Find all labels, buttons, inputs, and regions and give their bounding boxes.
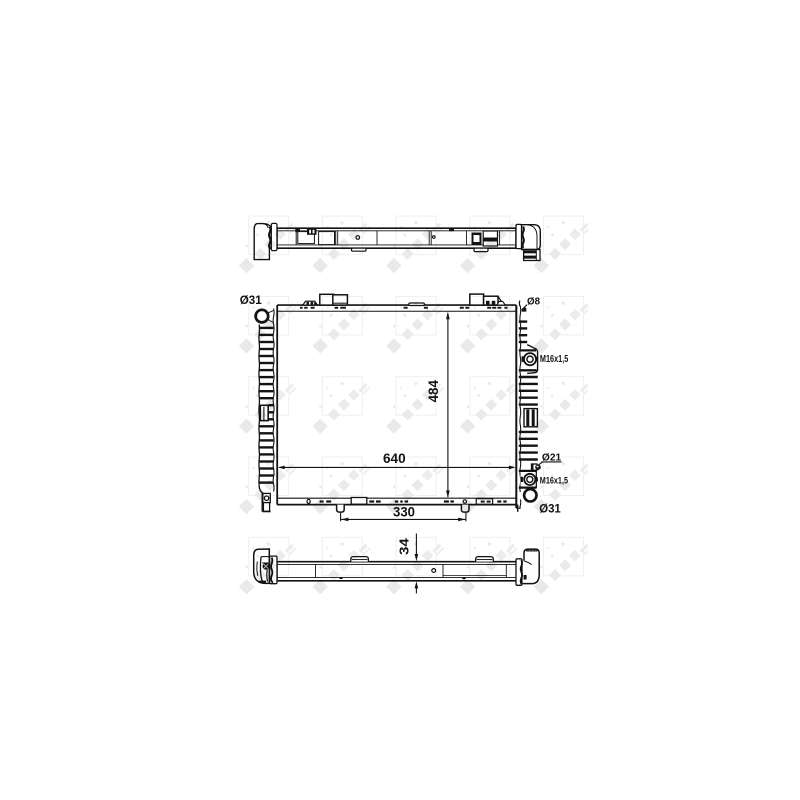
svg-text:Ø31: Ø31 <box>240 293 262 307</box>
svg-text:M16x1,5: M16x1,5 <box>540 354 569 365</box>
svg-text:34: 34 <box>397 537 412 555</box>
svg-text:640: 640 <box>383 451 406 467</box>
svg-text:Ø8: Ø8 <box>527 296 541 307</box>
svg-text:Ø21: Ø21 <box>542 453 562 464</box>
